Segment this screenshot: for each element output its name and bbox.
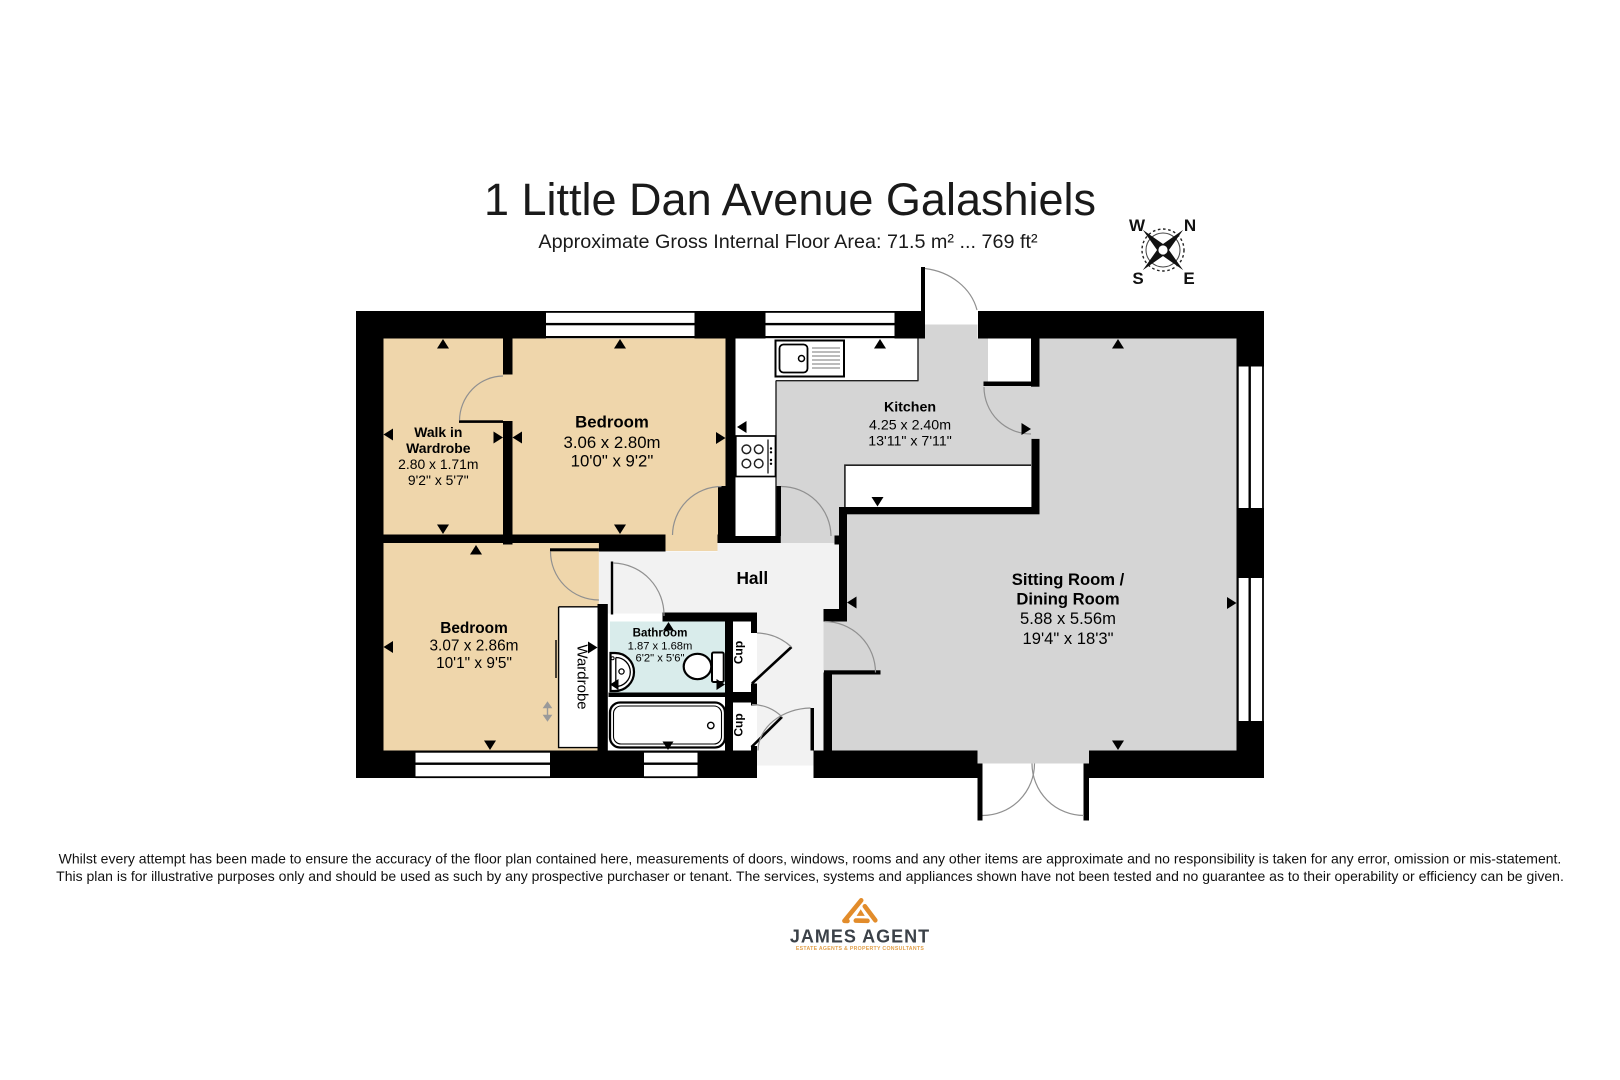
svg-text:E: E: [1183, 269, 1194, 288]
svg-text:4.25 x 2.40m: 4.25 x 2.40m: [869, 418, 951, 434]
svg-text:Hall: Hall: [736, 568, 768, 588]
svg-text:Wardrobe: Wardrobe: [574, 644, 591, 709]
svg-text:1 Little Dan Avenue Galashiels: 1 Little Dan Avenue Galashiels: [484, 174, 1096, 225]
svg-text:Walk in: Walk in: [414, 424, 462, 440]
svg-text:Kitchen: Kitchen: [884, 400, 936, 416]
svg-text:Bedroom: Bedroom: [575, 412, 649, 431]
svg-text:Dining Room: Dining Room: [1016, 589, 1119, 608]
svg-text:N: N: [1184, 216, 1196, 235]
svg-text:W: W: [1129, 216, 1146, 235]
svg-text:Cup: Cup: [732, 713, 746, 736]
svg-text:This plan is for illustrative: This plan is for illustrative purposes o…: [56, 868, 1564, 884]
svg-text:2.80 x 1.71m: 2.80 x 1.71m: [398, 456, 478, 472]
svg-text:1.87 x 1.68m: 1.87 x 1.68m: [628, 641, 693, 653]
svg-text:S: S: [1132, 269, 1143, 288]
svg-text:19'4" x 18'3": 19'4" x 18'3": [1022, 629, 1113, 648]
svg-text:JAMES AGENT: JAMES AGENT: [790, 927, 930, 947]
svg-text:Whilst every attempt has been: Whilst every attempt has been made to en…: [59, 851, 1562, 867]
svg-text:ESTATE AGENTS & PROPERTY CONSU: ESTATE AGENTS & PROPERTY CONSULTANTS: [796, 946, 925, 952]
svg-text:Bathroom: Bathroom: [633, 627, 688, 640]
svg-text:9'2" x 5'7": 9'2" x 5'7": [408, 472, 469, 488]
svg-text:Cup: Cup: [732, 641, 746, 664]
svg-text:Wardrobe: Wardrobe: [406, 440, 471, 456]
svg-text:10'0" x 9'2": 10'0" x 9'2": [571, 452, 654, 471]
svg-text:Sitting Room /: Sitting Room /: [1012, 570, 1125, 589]
svg-text:3.06 x 2.80m: 3.06 x 2.80m: [563, 433, 660, 452]
svg-text:Bedroom: Bedroom: [440, 620, 508, 637]
svg-text:5.88 x 5.56m: 5.88 x 5.56m: [1020, 609, 1116, 628]
svg-text:3.07 x 2.86m: 3.07 x 2.86m: [430, 638, 519, 655]
svg-text:13'11" x 7'11": 13'11" x 7'11": [868, 434, 952, 450]
svg-text:10'1" x 9'5": 10'1" x 9'5": [436, 655, 512, 672]
svg-text:Approximate Gross Internal Flo: Approximate Gross Internal Floor Area: 7…: [538, 231, 1038, 253]
svg-text:6'2" x 5'6": 6'2" x 5'6": [636, 653, 685, 665]
